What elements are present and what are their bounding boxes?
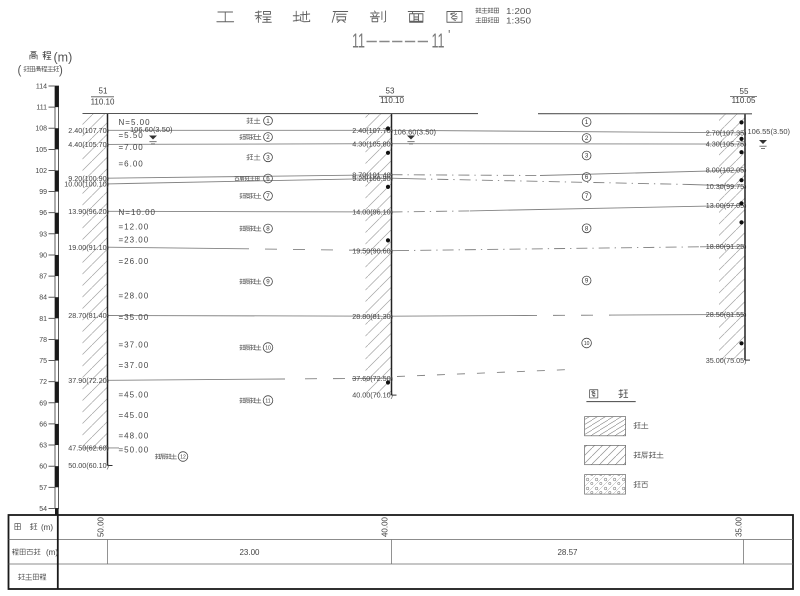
svg-text:=6.00: =6.00 — [119, 160, 144, 169]
svg-text:2.70(107.35): 2.70(107.35) — [706, 128, 747, 137]
svg-text:8: 8 — [266, 226, 270, 233]
svg-text:37.90(72.20): 37.90(72.20) — [68, 376, 109, 385]
svg-text:7: 7 — [585, 193, 589, 200]
svg-text:69: 69 — [39, 400, 47, 407]
svg-text:=45.00: =45.00 — [119, 391, 150, 400]
svg-text:28.57: 28.57 — [557, 548, 578, 557]
svg-text:': ' — [448, 27, 450, 42]
svg-text:=28.00: =28.00 — [119, 291, 150, 300]
svg-text:105: 105 — [35, 147, 47, 154]
svg-text:=45.00: =45.00 — [119, 411, 150, 420]
svg-text:1:350: 1:350 — [506, 15, 531, 25]
svg-text:106.60(3.50): 106.60(3.50) — [394, 128, 437, 137]
svg-text:1:200: 1:200 — [506, 6, 531, 16]
svg-text:57: 57 — [39, 485, 47, 492]
svg-text:=26.00: =26.00 — [119, 257, 150, 266]
svg-text:28.70(81.40): 28.70(81.40) — [68, 311, 109, 320]
svg-text:10.30(99.75): 10.30(99.75) — [706, 182, 747, 191]
svg-text:10: 10 — [265, 345, 271, 351]
svg-text:40.00(70.10): 40.00(70.10) — [352, 391, 393, 400]
svg-text:(m): (m) — [46, 548, 58, 557]
svg-text:87: 87 — [39, 274, 47, 281]
svg-text:72: 72 — [39, 379, 47, 386]
svg-text:19.00(91.10): 19.00(91.10) — [68, 243, 109, 252]
svg-text:=37.00: =37.00 — [119, 340, 150, 349]
svg-text:4.30(105.80): 4.30(105.80) — [352, 139, 393, 148]
svg-text:11: 11 — [352, 31, 365, 53]
svg-text:9.20(100.90): 9.20(100.90) — [352, 174, 393, 183]
svg-text:110.10: 110.10 — [91, 98, 115, 107]
svg-text:50.00: 50.00 — [97, 516, 106, 537]
svg-text:55: 55 — [740, 87, 749, 96]
svg-text:106.60(3.50): 106.60(3.50) — [130, 125, 173, 134]
svg-text:53: 53 — [386, 87, 395, 96]
svg-text:54: 54 — [39, 506, 47, 513]
svg-text:81: 81 — [39, 316, 47, 323]
svg-text:90: 90 — [39, 253, 47, 260]
svg-text:12: 12 — [180, 454, 186, 460]
svg-text:75: 75 — [39, 358, 47, 365]
svg-text:3: 3 — [266, 155, 270, 162]
svg-text:111: 111 — [36, 105, 47, 112]
svg-text:84: 84 — [39, 295, 47, 302]
svg-text:35.00(75.05): 35.00(75.05) — [706, 356, 747, 365]
svg-text:3: 3 — [585, 153, 589, 160]
svg-text:2: 2 — [266, 134, 270, 141]
svg-text:66: 66 — [39, 421, 47, 428]
svg-text:108: 108 — [35, 126, 47, 133]
svg-text:19.50(90.60): 19.50(90.60) — [352, 246, 393, 255]
svg-text:51: 51 — [99, 87, 108, 96]
svg-text:11: 11 — [432, 31, 445, 53]
svg-text:96: 96 — [39, 210, 47, 217]
svg-text:23.00: 23.00 — [239, 548, 260, 557]
svg-text:9: 9 — [585, 278, 589, 285]
svg-text:6: 6 — [585, 174, 589, 181]
svg-text:8: 8 — [585, 226, 589, 233]
svg-text:(m): (m) — [54, 51, 73, 65]
svg-text:47.50(62.60): 47.50(62.60) — [68, 444, 109, 453]
svg-text:2.40(107.70): 2.40(107.70) — [68, 126, 109, 135]
svg-text:63: 63 — [39, 443, 47, 450]
svg-text:=35.00: =35.00 — [119, 313, 150, 322]
svg-text:102: 102 — [35, 168, 47, 175]
svg-text:1: 1 — [585, 119, 589, 126]
svg-text:60: 60 — [39, 464, 47, 471]
svg-text:4.40(105.70): 4.40(105.70) — [68, 140, 109, 149]
svg-text:10.00(100.10): 10.00(100.10) — [64, 180, 109, 189]
svg-text:11: 11 — [265, 398, 270, 404]
svg-text:9: 9 — [266, 279, 270, 286]
svg-text:6: 6 — [266, 176, 270, 183]
svg-text:(m): (m) — [41, 523, 53, 532]
svg-text:28.50(81.55): 28.50(81.55) — [706, 310, 747, 319]
svg-text:=48.00: =48.00 — [119, 431, 150, 440]
svg-text:=50.00: =50.00 — [119, 446, 150, 455]
svg-text:=23.00: =23.00 — [119, 236, 150, 245]
svg-text:110.05: 110.05 — [732, 96, 756, 105]
svg-text:1: 1 — [266, 118, 270, 125]
svg-text:110.10: 110.10 — [380, 96, 404, 105]
svg-text:=7.00: =7.00 — [119, 143, 144, 152]
svg-text:14.00(96.10): 14.00(96.10) — [352, 208, 393, 217]
svg-text:N=10.00: N=10.00 — [119, 208, 156, 217]
svg-text:18.80(91.25): 18.80(91.25) — [706, 242, 747, 251]
svg-text:=12.00: =12.00 — [119, 223, 150, 232]
svg-text:28.80(81.30): 28.80(81.30) — [352, 312, 393, 321]
svg-text:2: 2 — [585, 135, 589, 142]
svg-text:7: 7 — [266, 193, 270, 200]
svg-text:13.90(96.20): 13.90(96.20) — [68, 207, 109, 216]
svg-text:78: 78 — [39, 337, 47, 344]
svg-text:40.00: 40.00 — [381, 516, 390, 537]
svg-text:99: 99 — [39, 189, 47, 196]
svg-text:(: ( — [18, 65, 22, 77]
svg-text:10: 10 — [584, 341, 590, 347]
svg-text:93: 93 — [39, 231, 47, 238]
svg-text:=37.00: =37.00 — [119, 361, 150, 370]
svg-text:114: 114 — [36, 84, 47, 91]
svg-text:106.55(3.50): 106.55(3.50) — [748, 127, 791, 136]
svg-text:): ) — [59, 65, 63, 77]
svg-text:50.00(60.10): 50.00(60.10) — [68, 461, 109, 470]
svg-text:35.00: 35.00 — [735, 516, 744, 537]
svg-text:8.00(102.05): 8.00(102.05) — [706, 166, 747, 175]
svg-text:4.30(105.75): 4.30(105.75) — [706, 140, 747, 149]
